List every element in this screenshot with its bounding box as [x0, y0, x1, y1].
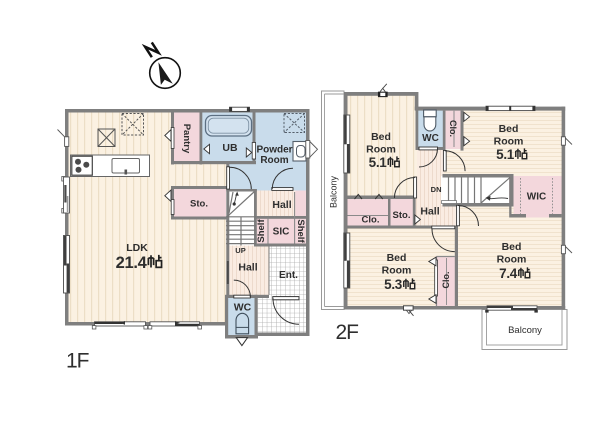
svg-text:5.1: 5.1	[369, 155, 388, 170]
svg-text:Powder: Powder	[256, 145, 292, 156]
svg-text:Bed: Bed	[371, 131, 391, 143]
svg-text:21.4: 21.4	[116, 254, 148, 272]
svg-text:WC: WC	[234, 302, 252, 314]
svg-text:DN: DN	[431, 185, 442, 194]
svg-text:Sto.: Sto.	[393, 210, 411, 221]
svg-text:Ent.: Ent.	[279, 270, 298, 281]
svg-text:1F: 1F	[66, 350, 89, 373]
svg-text:2F: 2F	[336, 321, 359, 344]
svg-text:Room: Room	[366, 144, 396, 156]
svg-text:Hall: Hall	[420, 206, 439, 218]
svg-text:Clo.: Clo.	[441, 272, 451, 289]
svg-text:Clo.: Clo.	[362, 215, 380, 226]
svg-text:WC: WC	[422, 133, 439, 144]
svg-text:5.3: 5.3	[384, 277, 403, 292]
svg-text:UB: UB	[222, 142, 238, 154]
svg-text:Room: Room	[260, 155, 288, 166]
svg-text:Shelf: Shelf	[295, 219, 306, 243]
svg-text:Bed: Bed	[502, 241, 522, 253]
svg-text:5.1: 5.1	[496, 147, 515, 162]
svg-text:Sto.: Sto.	[190, 199, 208, 210]
svg-text:Hall: Hall	[272, 199, 291, 211]
svg-text:Pantry: Pantry	[181, 124, 192, 154]
svg-text:Balcony: Balcony	[328, 175, 338, 208]
svg-text:Room: Room	[382, 265, 412, 277]
svg-text:LDK: LDK	[126, 242, 148, 254]
svg-text:UP: UP	[235, 246, 245, 255]
svg-text:SIC: SIC	[273, 227, 290, 238]
svg-text:7.4: 7.4	[499, 266, 518, 281]
svg-text:Room: Room	[494, 136, 524, 148]
svg-text:Clo.: Clo.	[448, 120, 458, 137]
svg-text:Balcony: Balcony	[508, 325, 542, 336]
svg-text:Bed: Bed	[499, 123, 519, 135]
svg-text:WIC: WIC	[527, 192, 546, 203]
svg-text:Shelf: Shelf	[256, 219, 267, 243]
svg-text:Hall: Hall	[238, 262, 257, 274]
svg-text:Bed: Bed	[387, 252, 407, 264]
svg-text:Room: Room	[497, 254, 527, 266]
